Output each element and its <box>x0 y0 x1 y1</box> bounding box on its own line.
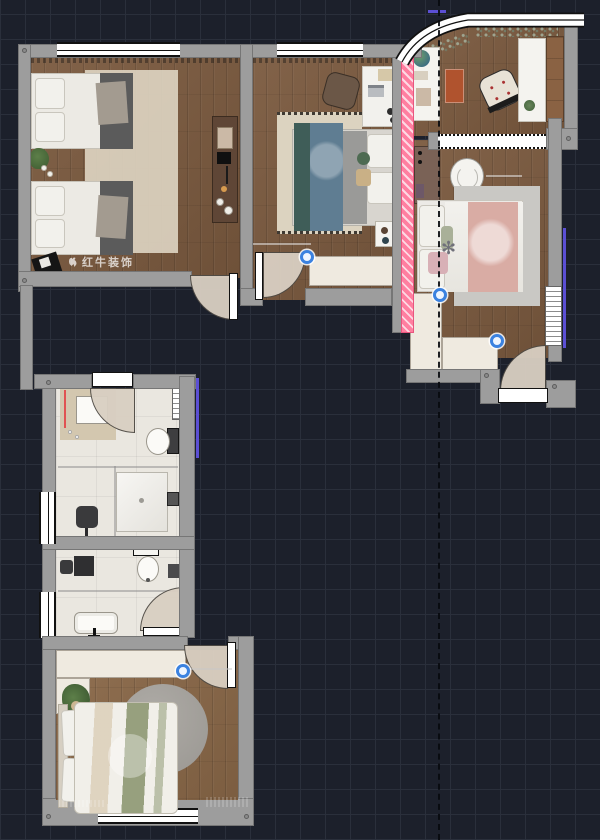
wall-g-top <box>42 636 188 650</box>
toilet[interactable] <box>146 428 170 455</box>
bed1-throw <box>96 81 129 125</box>
corner-watermark <box>58 800 104 807</box>
study-rug[interactable] <box>445 69 464 103</box>
bull-logo-icon <box>66 256 79 268</box>
desk-board <box>416 88 431 106</box>
bathtub[interactable] <box>74 612 118 634</box>
wall-box <box>168 564 179 578</box>
wall-screw <box>552 384 557 389</box>
bedside-knob <box>418 151 422 155</box>
desk-paper <box>414 71 428 80</box>
side-cups <box>41 165 47 171</box>
low-cabinet[interactable] <box>309 256 397 286</box>
bed-blue-duvet <box>310 123 343 231</box>
bed1-pillow <box>35 78 65 109</box>
watermark: 红牛装饰 <box>66 254 176 270</box>
wall-a-bottom <box>18 271 192 287</box>
desk-plant <box>524 100 535 111</box>
dresser-lamp <box>221 186 227 192</box>
mat-dot <box>75 435 79 439</box>
wall-sink[interactable] <box>167 492 179 506</box>
watermark-text: 红牛装饰 <box>82 254 134 270</box>
armchair-button <box>502 80 506 84</box>
bedside-knob <box>418 160 422 164</box>
floor-line <box>253 243 311 245</box>
bed4-highlight <box>108 734 152 778</box>
wall-screw <box>46 380 51 385</box>
dresser-cup <box>216 198 224 206</box>
wall-screw <box>484 373 489 378</box>
floorplan-canvas: 红牛装饰 <box>0 0 600 840</box>
red-wall-mark <box>64 390 66 428</box>
wall-bath1-top-left <box>34 374 92 389</box>
bed1-pillow <box>35 112 65 142</box>
dresser-cable <box>226 166 228 184</box>
toilet2-dot <box>146 578 150 582</box>
side-cups <box>47 171 53 177</box>
purple-wall-mark <box>563 228 566 348</box>
dresser-cup <box>224 206 233 215</box>
wall-screw <box>566 136 571 141</box>
wall-left-lower <box>20 285 33 390</box>
wall-entry-right <box>546 380 576 408</box>
door-bedroom4[interactable] <box>227 642 236 688</box>
tan-cushion <box>356 169 371 186</box>
small-chair[interactable] <box>60 560 73 574</box>
wall-screw <box>22 48 27 53</box>
tile-line <box>58 466 178 468</box>
green-cushion <box>357 152 370 165</box>
wall-screw <box>244 814 249 819</box>
dresser-frame <box>217 127 233 149</box>
closet-strip[interactable] <box>56 650 186 678</box>
tray-cup <box>382 237 389 244</box>
door-hotspot-marker[interactable] <box>176 664 190 678</box>
bed-teal-band <box>294 123 310 231</box>
wall-stack-right <box>179 376 195 638</box>
door-swing-bedroom1[interactable] <box>190 275 234 320</box>
door-bedroom2[interactable] <box>255 252 263 300</box>
pink-wall-highlight <box>401 57 414 333</box>
section-dashed-line <box>438 0 440 840</box>
mat-dot <box>68 430 72 434</box>
door-hotspot-marker[interactable] <box>433 288 447 302</box>
curved-bay-window[interactable] <box>392 2 588 66</box>
window-bedroom1[interactable] <box>57 42 180 57</box>
tray-cup <box>381 227 388 234</box>
dresser-device <box>217 152 231 164</box>
wall-b-bottom-right <box>305 288 392 306</box>
office-chair[interactable] <box>76 506 98 528</box>
wall-e-f-divider <box>42 536 195 550</box>
tile-line2 <box>58 590 178 592</box>
window-bedroom3[interactable] <box>545 286 562 346</box>
door-hotspot-marker[interactable] <box>300 250 314 264</box>
chair-line <box>486 175 522 177</box>
window-bath1[interactable] <box>39 492 56 544</box>
entry-door[interactable] <box>498 388 548 403</box>
door-bath1[interactable] <box>92 372 133 387</box>
marker-line <box>188 668 232 670</box>
armchair-button <box>495 97 499 101</box>
shower-drain <box>139 498 144 503</box>
window-bedroom2[interactable] <box>277 42 363 57</box>
small-desk[interactable] <box>74 556 94 576</box>
wall-left <box>18 44 31 292</box>
purple-wall-mark2 <box>196 378 199 458</box>
armchair-button <box>507 91 511 95</box>
bed2-pillow <box>35 186 65 216</box>
flower-decor: ✻ <box>441 238 456 259</box>
bedside-slab <box>416 184 424 198</box>
door-hotspot-marker[interactable] <box>490 334 504 348</box>
wall-screw <box>22 278 27 283</box>
bed2-pillow <box>35 219 65 248</box>
bed3-pink-blanket <box>468 202 518 292</box>
corner-watermark <box>206 797 250 807</box>
armchair-button <box>490 86 494 90</box>
laptop <box>368 85 384 97</box>
glass-partition[interactable] <box>438 134 546 149</box>
door-bedroom1[interactable] <box>229 273 238 320</box>
window-bath2[interactable] <box>39 592 56 638</box>
wall-a-b <box>240 44 253 306</box>
wall-screw <box>46 814 51 819</box>
bed2-throw <box>96 195 129 239</box>
wall-entry-block <box>480 369 500 404</box>
door-bath2[interactable] <box>143 627 184 636</box>
